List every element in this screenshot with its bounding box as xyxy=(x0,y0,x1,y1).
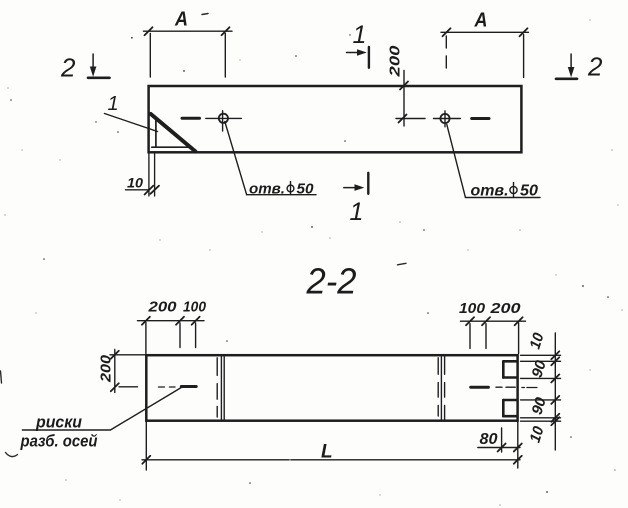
svg-text:10: 10 xyxy=(527,424,548,445)
svg-text:2-2: 2-2 xyxy=(306,261,357,302)
svg-text:90: 90 xyxy=(529,395,550,417)
svg-text:2: 2 xyxy=(60,53,76,83)
svg-text:10: 10 xyxy=(527,330,548,351)
svg-text:80: 80 xyxy=(480,431,498,448)
svg-text:отв.: отв. xyxy=(249,182,285,198)
svg-text:разб. осей: разб. осей xyxy=(20,432,98,451)
svg-text:риски: риски xyxy=(35,413,82,432)
svg-text:2: 2 xyxy=(587,52,603,82)
svg-text:200: 200 xyxy=(98,354,115,383)
svg-text:А: А xyxy=(474,10,488,32)
svg-text:200: 200 xyxy=(387,45,404,78)
svg-text:L: L xyxy=(321,442,333,463)
svg-text:10: 10 xyxy=(127,175,143,191)
svg-text:100: 100 xyxy=(459,301,485,317)
svg-text:200: 200 xyxy=(489,301,520,317)
svg-text:100: 100 xyxy=(183,300,206,316)
svg-text:1: 1 xyxy=(108,93,119,115)
svg-text:отв.: отв. xyxy=(471,183,509,200)
svg-text:А: А xyxy=(174,9,188,31)
svg-text:1: 1 xyxy=(353,21,367,49)
svg-text:50: 50 xyxy=(520,183,538,200)
svg-text:50: 50 xyxy=(297,182,314,198)
svg-text:200: 200 xyxy=(147,300,176,316)
svg-text:1: 1 xyxy=(350,198,364,226)
